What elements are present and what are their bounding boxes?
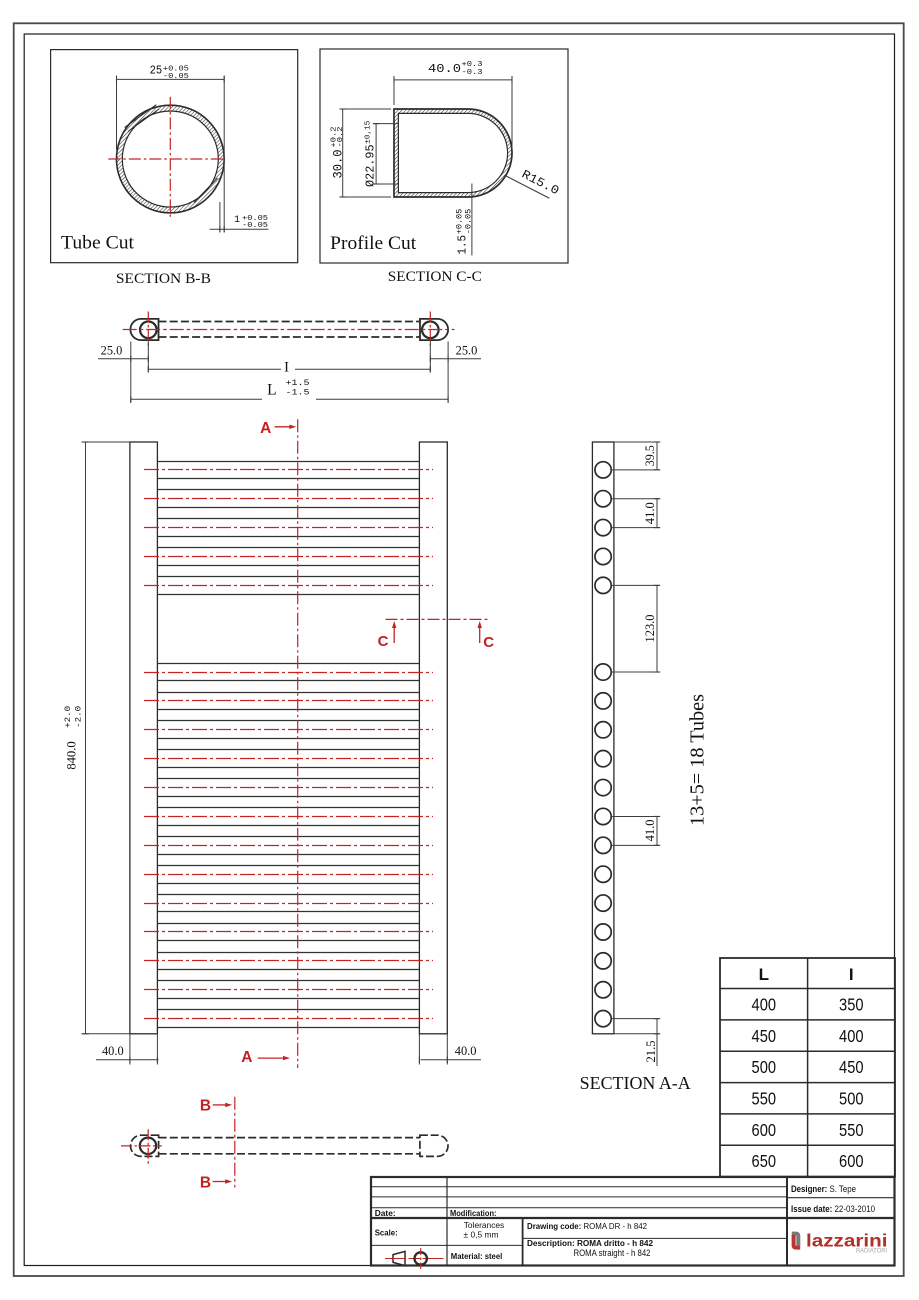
- svg-text:-0.3: -0.3: [462, 69, 484, 77]
- svg-text:Drawing code: ROMA DR - h 842: Drawing code: ROMA DR - h 842: [527, 1221, 647, 1231]
- svg-text:1.5: 1.5: [456, 235, 470, 255]
- svg-text:840.0: 840.0: [64, 741, 78, 769]
- svg-text:1: 1: [234, 215, 240, 226]
- svg-text:Description: ROMA dritto - h 8: Description: ROMA dritto - h 842: [527, 1238, 653, 1248]
- svg-text:Tolerances: Tolerances: [464, 1220, 505, 1230]
- svg-text:550: 550: [839, 1120, 864, 1140]
- svg-text:40.0: 40.0: [102, 1044, 124, 1058]
- svg-text:400: 400: [752, 994, 777, 1014]
- svg-text:41.0: 41.0: [643, 502, 657, 524]
- svg-text:13+5= 18 Tubes: 13+5= 18 Tubes: [687, 694, 709, 826]
- svg-text:650: 650: [752, 1151, 777, 1171]
- svg-text:±0,15: ±0,15: [365, 121, 373, 144]
- svg-text:+2.0: +2.0: [64, 706, 73, 728]
- svg-text:25.0: 25.0: [456, 343, 478, 357]
- svg-text:A: A: [260, 420, 271, 437]
- svg-text:I: I: [849, 965, 854, 984]
- svg-text:B: B: [200, 1098, 211, 1115]
- svg-text:Material: steel: Material: steel: [451, 1251, 503, 1261]
- svg-text:± 0,5 mm: ± 0,5 mm: [464, 1230, 499, 1240]
- svg-text:39.5: 39.5: [643, 445, 657, 466]
- svg-text:RADIATORI: RADIATORI: [856, 1248, 887, 1255]
- svg-text:Designer: S. Tepe: Designer: S. Tepe: [791, 1184, 856, 1194]
- svg-text:40.0: 40.0: [455, 1044, 477, 1058]
- svg-text:400: 400: [839, 1026, 864, 1046]
- svg-text:Tube Cut: Tube Cut: [61, 234, 135, 254]
- svg-text:-0.05: -0.05: [242, 222, 268, 230]
- svg-text:Ø22.95: Ø22.95: [364, 144, 378, 187]
- svg-text:30.0: 30.0: [332, 150, 346, 179]
- svg-text:-0.2: -0.2: [337, 126, 345, 148]
- svg-text:SECTION C-C: SECTION C-C: [388, 269, 482, 285]
- svg-text:123.0: 123.0: [643, 615, 657, 643]
- svg-text:B: B: [200, 1174, 211, 1191]
- svg-text:350: 350: [839, 994, 864, 1014]
- svg-text:Modification:: Modification:: [450, 1208, 497, 1218]
- svg-text:A: A: [241, 1049, 252, 1066]
- svg-text:C: C: [483, 634, 494, 651]
- svg-text:L: L: [267, 381, 276, 398]
- svg-text:L: L: [759, 965, 769, 984]
- svg-text:SECTION A-A: SECTION A-A: [580, 1073, 691, 1093]
- svg-text:450: 450: [839, 1057, 864, 1077]
- svg-text:Issue date: 22-03-2010: Issue date: 22-03-2010: [791, 1204, 875, 1214]
- svg-text:500: 500: [752, 1057, 777, 1077]
- svg-text:25.0: 25.0: [101, 343, 123, 357]
- svg-text:Scale:: Scale:: [375, 1227, 398, 1237]
- svg-text:C: C: [378, 633, 389, 650]
- svg-text:-2.0: -2.0: [75, 706, 84, 728]
- svg-text:SECTION B-B: SECTION B-B: [116, 271, 211, 287]
- svg-text:600: 600: [752, 1120, 777, 1140]
- svg-text:21.5: 21.5: [644, 1041, 658, 1063]
- svg-text:ROMA straight - h 842: ROMA straight - h 842: [574, 1248, 651, 1258]
- svg-text:550: 550: [752, 1088, 777, 1108]
- svg-text:+1.5: +1.5: [286, 379, 310, 388]
- svg-text:600: 600: [839, 1151, 864, 1171]
- svg-text:+0.3: +0.3: [462, 61, 484, 69]
- svg-text:25: 25: [150, 63, 163, 77]
- svg-text:-1.5: -1.5: [286, 389, 310, 398]
- svg-text:Date:: Date:: [375, 1208, 396, 1218]
- svg-text:-0.05: -0.05: [465, 209, 474, 235]
- svg-text:I: I: [284, 359, 289, 375]
- svg-text:40.0: 40.0: [428, 62, 461, 76]
- svg-text:500: 500: [839, 1088, 864, 1108]
- svg-text:-0.05: -0.05: [163, 73, 189, 81]
- svg-text:+0.05: +0.05: [456, 209, 465, 235]
- svg-text:Profile Cut: Profile Cut: [330, 234, 417, 254]
- svg-text:41.0: 41.0: [643, 819, 657, 841]
- svg-text:450: 450: [752, 1026, 777, 1046]
